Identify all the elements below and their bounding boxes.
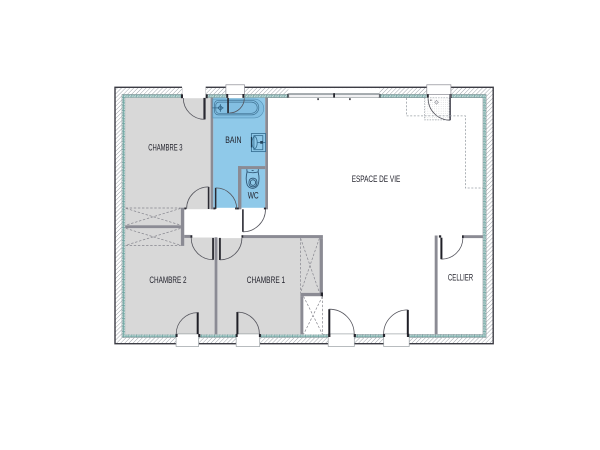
svg-text:CELLIER: CELLIER	[448, 273, 473, 283]
svg-text:CHAMBRE 3: CHAMBRE 3	[148, 142, 182, 152]
svg-text:ESPACE DE VIE: ESPACE DE VIE	[352, 174, 401, 184]
svg-text:CHAMBRE 1: CHAMBRE 1	[247, 275, 285, 285]
svg-text:CHAMBRE 2: CHAMBRE 2	[149, 275, 186, 285]
svg-text:BAIN: BAIN	[225, 135, 241, 145]
svg-text:WC: WC	[248, 190, 259, 200]
